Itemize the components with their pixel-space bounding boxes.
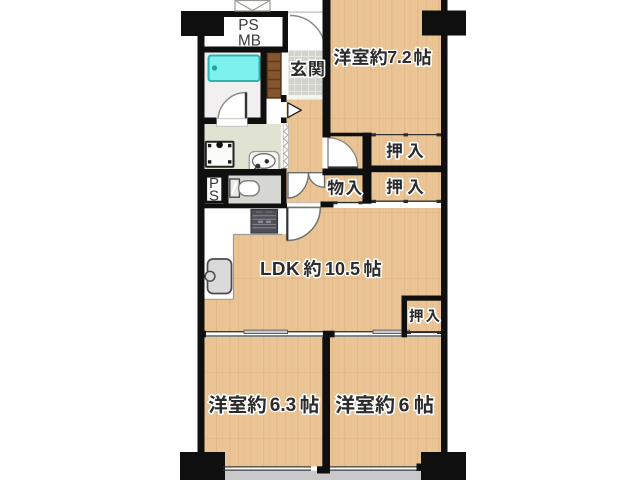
svg-text:LDK: LDK — [260, 258, 300, 279]
svg-text:7.2: 7.2 — [387, 47, 412, 67]
svg-text:6.3: 6.3 — [270, 395, 296, 416]
svg-text:10.5: 10.5 — [325, 259, 360, 279]
svg-text:6: 6 — [399, 395, 410, 417]
svg-text:MB: MB — [238, 33, 261, 50]
svg-text:PS: PS — [238, 17, 258, 34]
